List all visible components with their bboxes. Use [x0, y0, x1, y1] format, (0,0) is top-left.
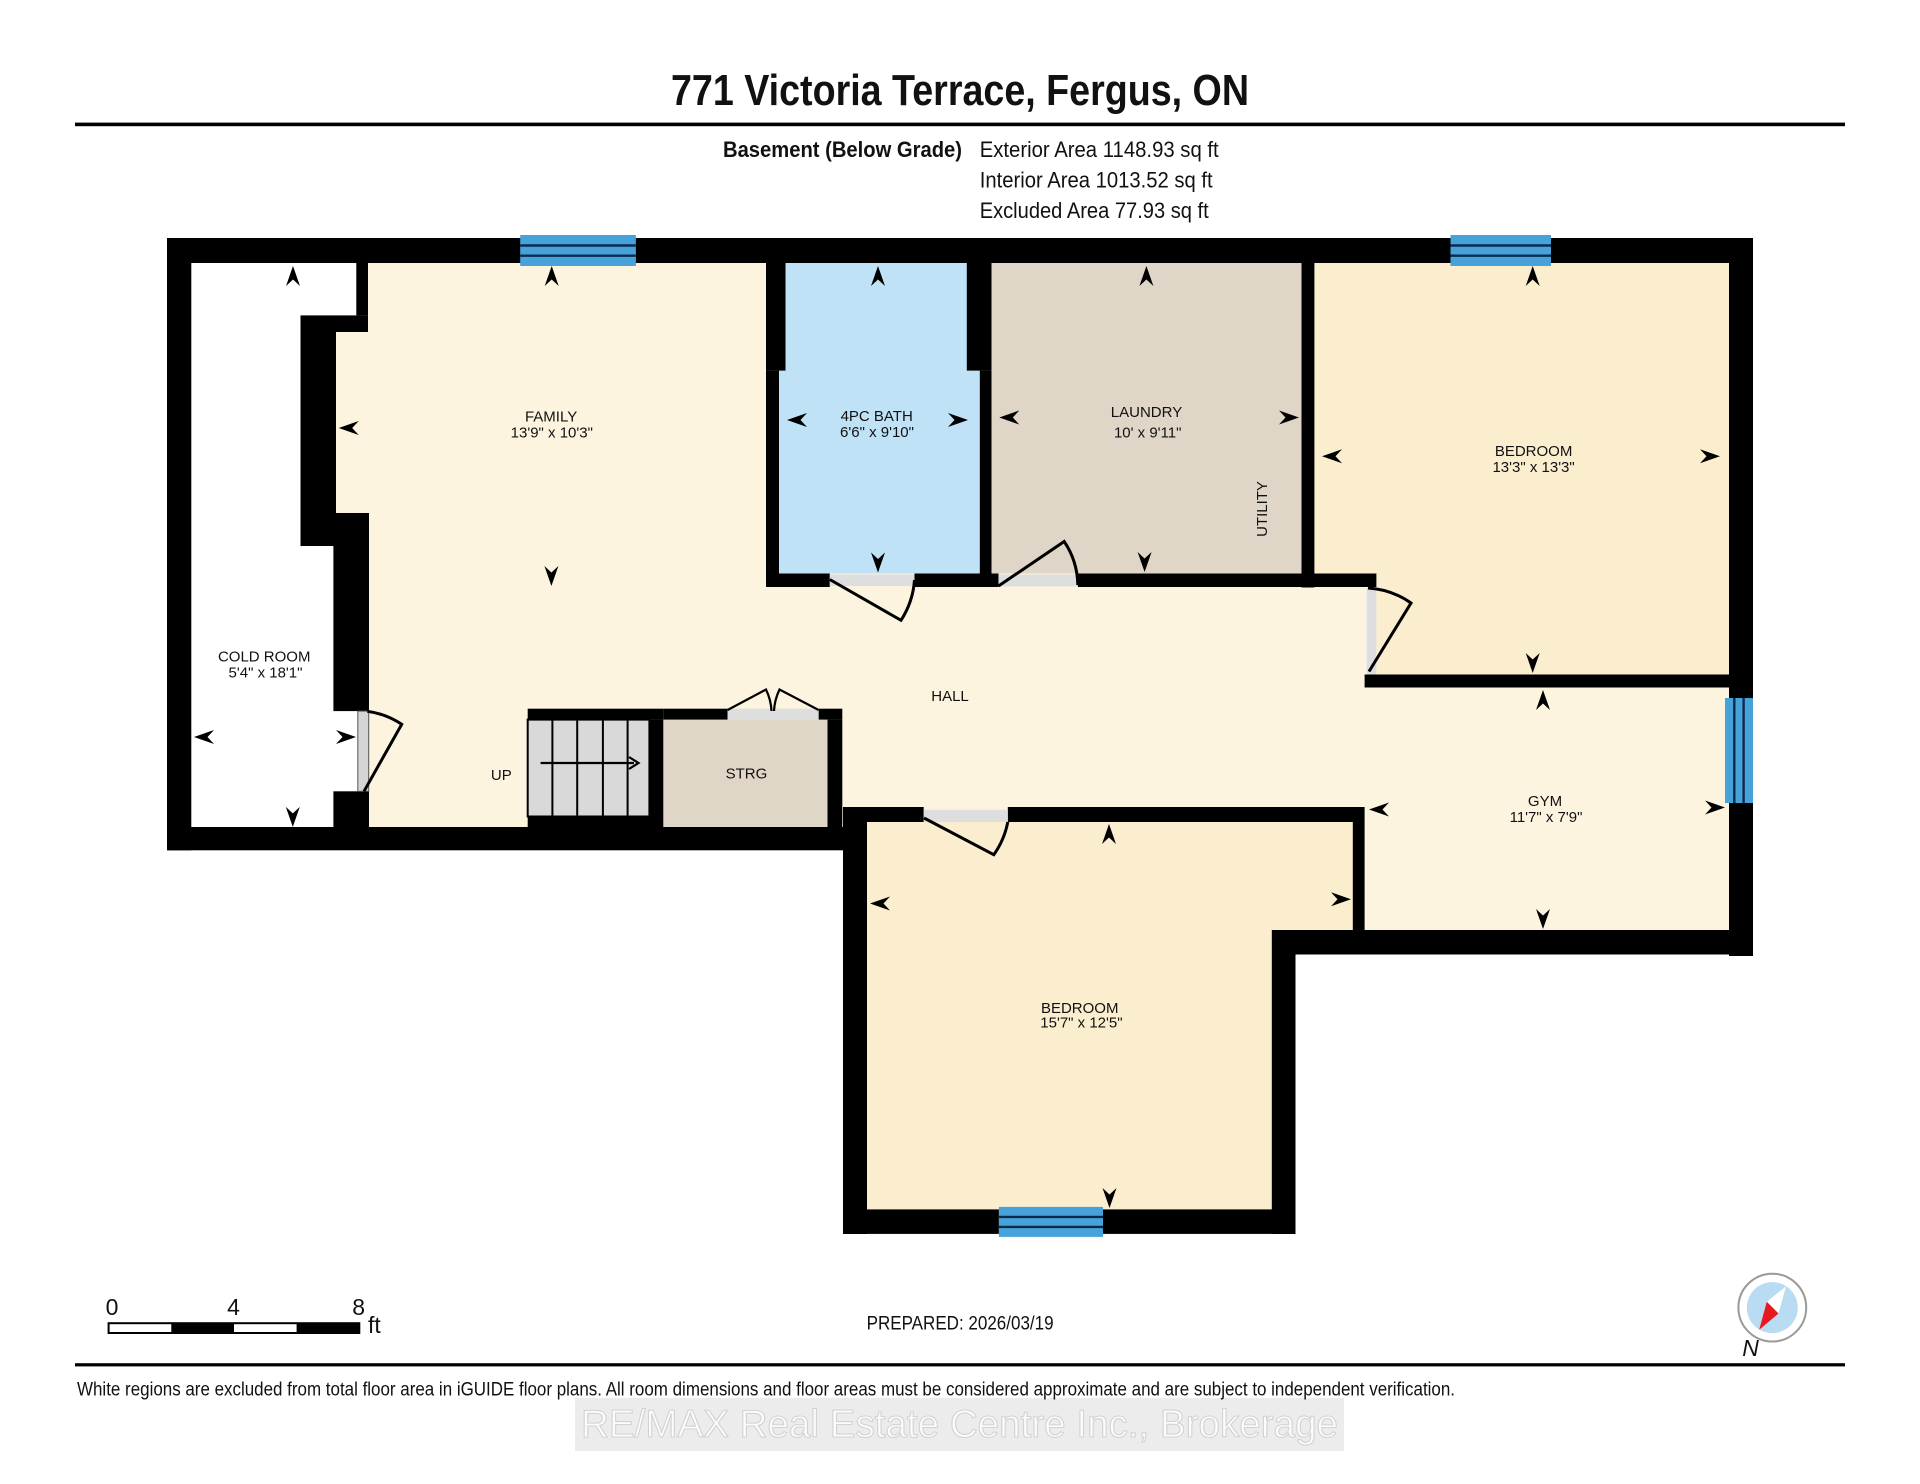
svg-text:0: 0: [106, 1294, 119, 1320]
svg-text:LAUNDRY: LAUNDRY: [1111, 404, 1182, 421]
svg-text:COLD ROOM: COLD ROOM: [218, 649, 311, 666]
svg-text:13'3" x 13'3": 13'3" x 13'3": [1492, 459, 1574, 476]
svg-text:15'7" x 12'5": 15'7" x 12'5": [1040, 1014, 1122, 1031]
svg-text:HALL: HALL: [931, 688, 969, 705]
svg-text:FAMILY: FAMILY: [525, 409, 577, 426]
svg-text:STRG: STRG: [726, 765, 768, 782]
svg-text:Interior Area 1013.52 sq ft: Interior Area 1013.52 sq ft: [980, 168, 1213, 193]
svg-text:White regions are excluded fro: White regions are excluded from total fl…: [77, 1380, 1455, 1401]
svg-text:Excluded Area 77.93 sq ft: Excluded Area 77.93 sq ft: [980, 198, 1209, 223]
svg-text:Exterior Area 1148.93 sq ft: Exterior Area 1148.93 sq ft: [980, 137, 1219, 162]
svg-text:11'7" x 7'9": 11'7" x 7'9": [1510, 809, 1583, 826]
svg-text:Basement (Below Grade): Basement (Below Grade): [723, 137, 962, 162]
svg-text:GYM: GYM: [1528, 793, 1562, 810]
svg-text:UTILITY: UTILITY: [1254, 481, 1271, 537]
svg-text:ft: ft: [368, 1312, 381, 1338]
svg-text:4PC BATH: 4PC BATH: [841, 408, 913, 425]
svg-text:8: 8: [352, 1294, 365, 1320]
svg-text:4: 4: [227, 1294, 240, 1320]
svg-text:10' x 9'11": 10' x 9'11": [1114, 425, 1182, 442]
svg-text:BEDROOM: BEDROOM: [1495, 443, 1573, 460]
svg-text:5'4" x 18'1": 5'4" x 18'1": [229, 664, 303, 681]
svg-text:6'6" x 9'10": 6'6" x 9'10": [840, 424, 914, 441]
svg-text:UP: UP: [491, 767, 512, 784]
svg-text:RE/MAX Real Estate Centre Inc.: RE/MAX Real Estate Centre Inc., Brokerag…: [581, 1403, 1338, 1446]
svg-text:771 Victoria Terrace, Fergus,: 771 Victoria Terrace, Fergus, ON: [671, 66, 1249, 115]
svg-text:PREPARED: 2026/03/19: PREPARED: 2026/03/19: [867, 1313, 1054, 1335]
svg-text:13'9" x 10'3": 13'9" x 10'3": [511, 424, 593, 441]
svg-text:N: N: [1742, 1335, 1759, 1361]
